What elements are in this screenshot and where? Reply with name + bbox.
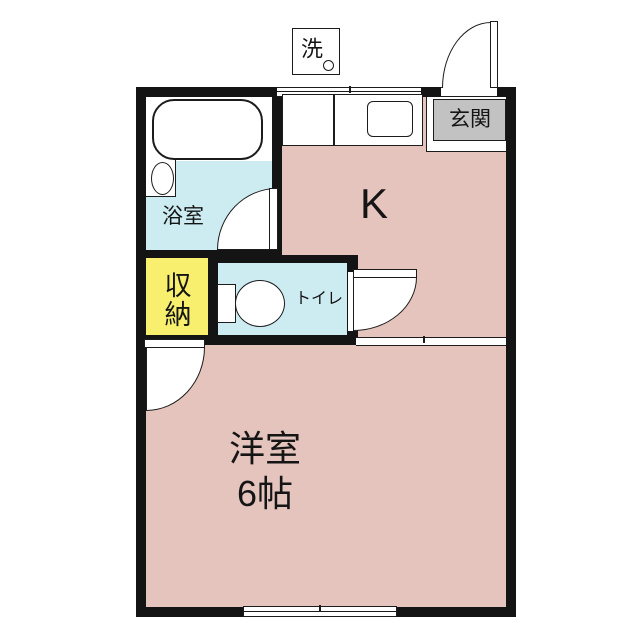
label-room-size: 6帖 <box>229 471 301 516</box>
label-room-name: 洋室 <box>229 426 301 471</box>
entrance-door-leaf <box>490 21 498 88</box>
entrance-door-opening <box>441 87 497 97</box>
kitchen-sink <box>367 101 413 137</box>
label-storage-line1: 収 <box>165 272 192 301</box>
counter-divider-line <box>333 95 335 145</box>
wall-right <box>506 87 516 617</box>
label-washer: 洗 <box>301 37 323 60</box>
toilet-bowl <box>235 280 285 327</box>
room-door-leaf <box>144 339 205 348</box>
wall-toilet-top <box>208 255 358 263</box>
kitchen-room-divider <box>356 337 506 346</box>
wall-left <box>136 87 146 617</box>
toilet-door-leaf <box>353 269 417 278</box>
bathtub <box>152 99 263 160</box>
window-bottom-tick <box>319 605 321 612</box>
label-entrance: 玄関 <box>449 109 491 131</box>
label-bathroom: 浴室 <box>162 206 204 228</box>
window-top-tick <box>349 86 351 93</box>
label-storage-line2: 納 <box>165 301 192 330</box>
floor-plan: 洗 玄関 K 浴室 収 納 トイレ 洋室 6帖 <box>0 0 640 640</box>
kitchen-room-divider-tick <box>423 336 425 343</box>
basin-oval <box>151 162 174 195</box>
label-storage: 収 納 <box>165 272 192 330</box>
entrance-door-arc <box>442 22 491 88</box>
label-kitchen: K <box>360 182 388 226</box>
label-western-room: 洋室 6帖 <box>229 426 301 516</box>
washer-faucet-circle <box>323 60 334 71</box>
western-room-floor <box>146 345 506 607</box>
toilet-tank <box>217 284 236 323</box>
label-toilet: トイレ <box>295 292 343 309</box>
bathroom-door-leaf <box>269 188 278 250</box>
